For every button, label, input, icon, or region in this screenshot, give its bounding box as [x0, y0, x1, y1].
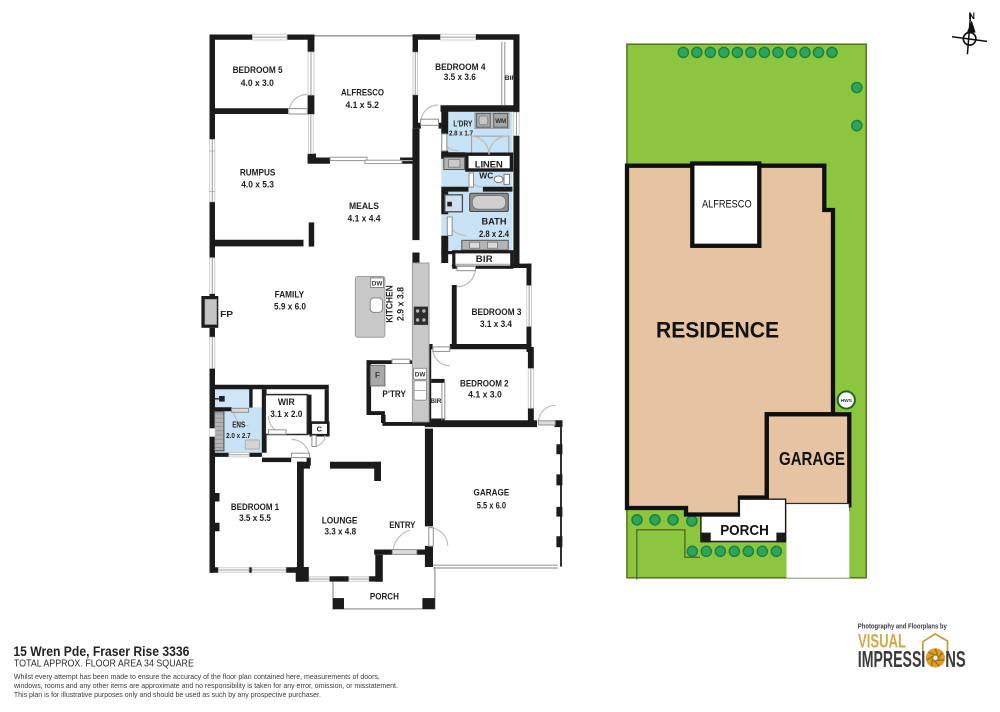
- svg-text:WC: WC: [479, 172, 493, 181]
- svg-text:2.9 x 3.8: 2.9 x 3.8: [396, 286, 407, 321]
- svg-text:Whilst every attempt has been: Whilst every attempt has been made to en…: [14, 672, 380, 681]
- svg-text:windows, rooms and any other i: windows, rooms and any other items are a…: [13, 681, 398, 690]
- svg-text:3.3 x 4.8: 3.3 x 4.8: [325, 527, 357, 538]
- svg-text:DW: DW: [415, 372, 427, 379]
- svg-text:4.0 x 5.3: 4.0 x 5.3: [241, 180, 274, 191]
- svg-text:4.0 x 3.0: 4.0 x 3.0: [241, 78, 274, 89]
- svg-text:4.1 x 3.0: 4.1 x 3.0: [468, 389, 502, 400]
- svg-text:5.9 x 6.0: 5.9 x 6.0: [274, 301, 306, 312]
- svg-text:C: C: [317, 425, 323, 434]
- svg-text:L'DRY: L'DRY: [453, 120, 473, 129]
- svg-text:2.8 x 1.7: 2.8 x 1.7: [449, 128, 473, 137]
- svg-text:2.8 x 2.4: 2.8 x 2.4: [479, 229, 510, 240]
- svg-text:P’TRY: P’TRY: [382, 389, 406, 400]
- svg-text:LINEN: LINEN: [475, 159, 503, 170]
- svg-text:3.1 x 3.4: 3.1 x 3.4: [480, 319, 513, 330]
- svg-text:KITCHEN: KITCHEN: [385, 285, 396, 323]
- svg-text:BEDROOM 2: BEDROOM 2: [460, 378, 509, 389]
- svg-text:BEDROOM 5: BEDROOM 5: [233, 65, 284, 76]
- svg-text:F: F: [375, 371, 380, 380]
- svg-text:PORCH: PORCH: [370, 592, 399, 603]
- svg-text:15 Wren Pde, Fraser Rise 3336: 15 Wren Pde, Fraser Rise 3336: [13, 644, 189, 659]
- svg-text:DW: DW: [372, 280, 384, 287]
- svg-text:RESIDENCE: RESIDENCE: [656, 318, 779, 343]
- svg-text:ALFRESCO: ALFRESCO: [341, 88, 384, 99]
- svg-text:FAMILY: FAMILY: [275, 289, 305, 300]
- svg-text:3.1 x 2.0: 3.1 x 2.0: [270, 409, 302, 420]
- svg-text:ENTRY: ENTRY: [389, 520, 416, 531]
- svg-text:NS: NS: [945, 646, 966, 672]
- svg-text:BATH: BATH: [482, 217, 507, 228]
- svg-text:HWS: HWS: [841, 398, 853, 404]
- svg-text:PORCH: PORCH: [720, 522, 769, 539]
- svg-text:WIR: WIR: [278, 397, 295, 408]
- svg-text:BIR: BIR: [505, 75, 517, 82]
- svg-text:IMPRESSI: IMPRESSI: [858, 646, 926, 672]
- svg-text:GARAGE: GARAGE: [779, 448, 845, 469]
- svg-text:MEALS: MEALS: [349, 201, 380, 212]
- svg-text:GARAGE: GARAGE: [474, 488, 510, 499]
- svg-text:ENS: ENS: [232, 421, 246, 430]
- svg-text:BIR: BIR: [476, 254, 493, 265]
- svg-text:TOTAL APPROX. FLOOR AREA 34 SQ: TOTAL APPROX. FLOOR AREA 34 SQUARE: [14, 658, 194, 669]
- svg-text:3.5 x 3.6: 3.5 x 3.6: [444, 72, 476, 83]
- svg-text:LOUNGE: LOUNGE: [322, 516, 358, 527]
- svg-text:2.0 x 2.7: 2.0 x 2.7: [226, 431, 251, 440]
- svg-text:FP: FP: [220, 309, 234, 319]
- svg-text:This plan is for illustrative: This plan is for illustrative purposes o…: [14, 690, 321, 699]
- svg-text:BIR: BIR: [430, 398, 441, 405]
- svg-text:RUMPUS: RUMPUS: [240, 167, 276, 178]
- svg-text:BEDROOM 1: BEDROOM 1: [231, 502, 280, 513]
- svg-text:ALFRESCO: ALFRESCO: [702, 198, 752, 210]
- svg-text:4.1 x 5.2: 4.1 x 5.2: [345, 100, 379, 111]
- svg-text:3.5 x 5.5: 3.5 x 5.5: [239, 513, 271, 524]
- svg-text:BEDROOM 3: BEDROOM 3: [472, 307, 522, 318]
- svg-text:4.1 x 4.4: 4.1 x 4.4: [348, 214, 382, 225]
- svg-text:WM: WM: [495, 118, 506, 125]
- svg-text:5.5 x 6.0: 5.5 x 6.0: [477, 501, 506, 512]
